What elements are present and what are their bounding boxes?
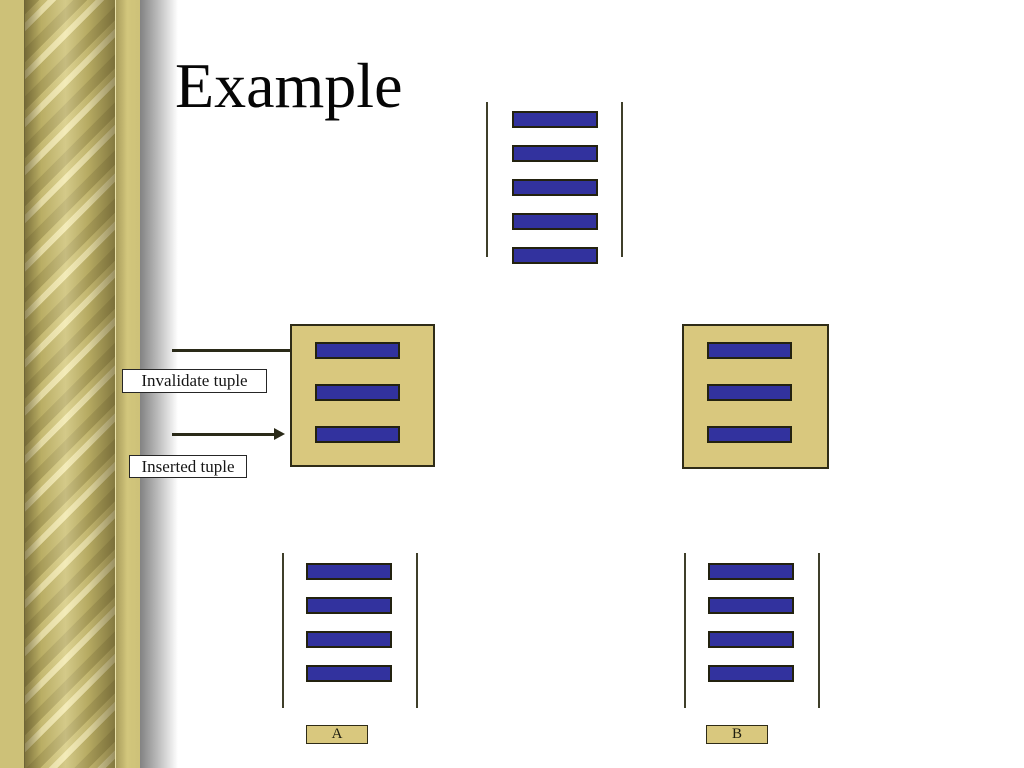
- bracket-line-icon: [282, 553, 284, 708]
- arrow-head-icon: [274, 428, 285, 440]
- tuple-bar: [512, 247, 598, 264]
- presentation-slide: Example Invalidate tuple Inserted tuple …: [0, 0, 1024, 768]
- tuple-bar: [707, 426, 792, 443]
- tuple-bar: [707, 342, 792, 359]
- tuple-bar: [315, 426, 400, 443]
- tuple-bar: [707, 384, 792, 401]
- bracket-line-icon: [684, 553, 686, 708]
- tuple-bars: [708, 563, 794, 682]
- tuple-bar: [708, 665, 794, 682]
- decorative-left-border: [0, 0, 140, 768]
- tuple-bar: [306, 665, 392, 682]
- arrow-shaft: [172, 349, 299, 352]
- bracket-line-icon: [486, 102, 488, 257]
- tuple-bar: [306, 597, 392, 614]
- bracket-line-icon: [621, 102, 623, 257]
- tuple-group-table-a: [282, 553, 418, 708]
- inserted-arrow-icon: [172, 428, 285, 440]
- tuple-group-table-b: [684, 553, 820, 708]
- tuple-bars: [315, 342, 433, 443]
- arrow-shaft: [172, 433, 276, 436]
- tuple-bars: [512, 111, 598, 264]
- tuple-bar: [708, 597, 794, 614]
- inserted-tuple-label: Inserted tuple: [129, 455, 247, 478]
- tuple-bars: [707, 342, 827, 443]
- tuple-bar: [512, 111, 598, 128]
- gold-flat-band: [0, 0, 25, 768]
- bracket-line-icon: [416, 553, 418, 708]
- invalidate-tuple-label: Invalidate tuple: [122, 369, 267, 393]
- tuple-bar: [306, 563, 392, 580]
- tuple-bar: [708, 563, 794, 580]
- tuple-bars: [306, 563, 392, 682]
- tuple-bar: [512, 179, 598, 196]
- bracket-line-icon: [818, 553, 820, 708]
- tuple-bar: [306, 631, 392, 648]
- gold-rope-column: [25, 0, 115, 768]
- tuple-group-top: [486, 102, 623, 257]
- invalidate-arrow-icon: [172, 344, 308, 356]
- tuple-bar: [315, 384, 400, 401]
- delta-box-left: [290, 324, 435, 467]
- table-b-caption: B: [706, 725, 768, 744]
- table-a-caption: A: [306, 725, 368, 744]
- tuple-bar: [315, 342, 400, 359]
- tuple-bar: [512, 213, 598, 230]
- slide-title: Example: [175, 54, 402, 118]
- tuple-bar: [512, 145, 598, 162]
- delta-box-right: [682, 324, 829, 469]
- tuple-bar: [708, 631, 794, 648]
